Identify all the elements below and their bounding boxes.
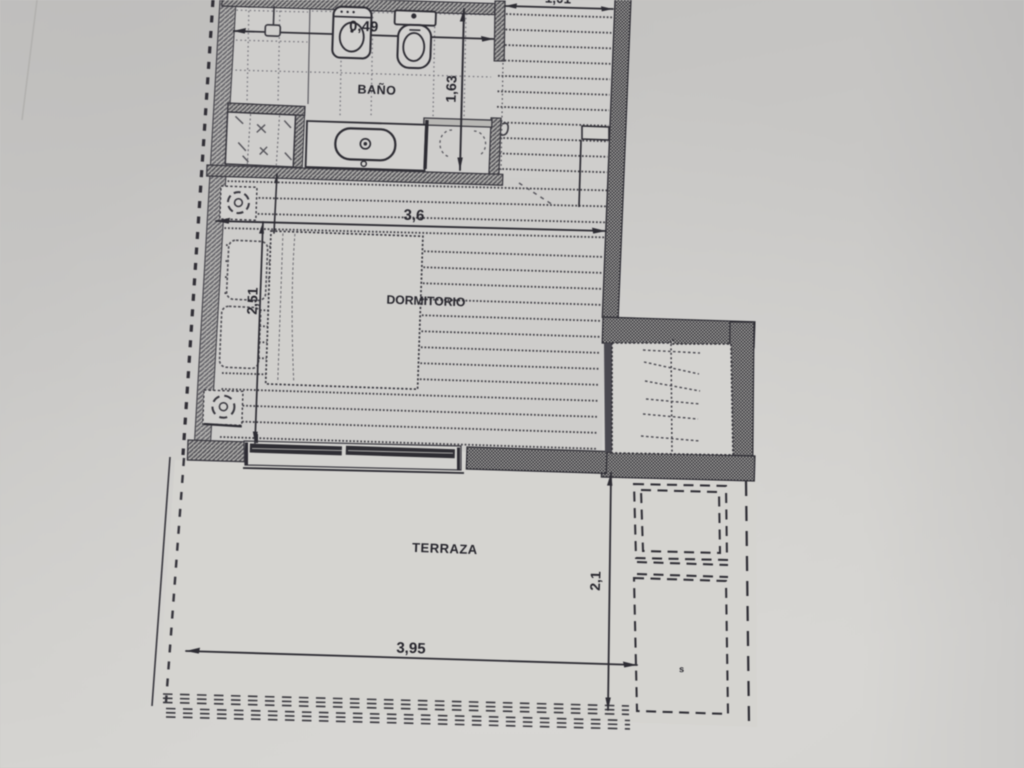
svg-text:0,49: 0,49	[349, 18, 379, 35]
svg-text:BAÑO: BAÑO	[357, 81, 396, 97]
svg-text:s: s	[679, 664, 684, 674]
svg-text:TERRAZA: TERRAZA	[412, 540, 478, 557]
svg-text:DORMITORIO: DORMITORIO	[386, 293, 465, 310]
svg-text:2,51: 2,51	[244, 287, 261, 315]
svg-text:3,95: 3,95	[396, 639, 426, 657]
svg-text:1,01: 1,01	[545, 0, 572, 6]
svg-text:1,63: 1,63	[443, 75, 460, 103]
svg-text:3,6: 3,6	[403, 207, 424, 225]
svg-text:2,1: 2,1	[587, 571, 604, 591]
